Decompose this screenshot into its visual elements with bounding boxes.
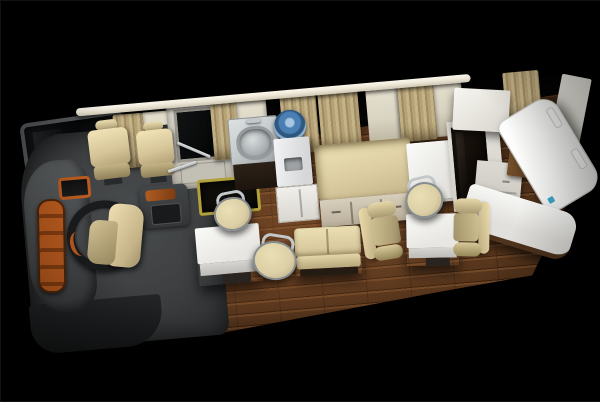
- cabinet-seam: [299, 189, 303, 218]
- seat-back: [135, 128, 175, 166]
- console-panel: [150, 203, 182, 225]
- lounge-bench: [294, 225, 362, 276]
- chair-armrest: [453, 242, 481, 257]
- passenger-seat-1: [84, 117, 135, 186]
- armchair-2: [451, 198, 490, 257]
- render-canvas: [0, 0, 600, 402]
- vehicle-interior: [13, 59, 592, 352]
- stool-2: [250, 231, 297, 283]
- tv-glare: [455, 131, 468, 200]
- fridge-logo: [547, 196, 555, 204]
- chair-seat: [371, 215, 401, 247]
- curtain-5: [397, 81, 438, 142]
- cabinet-handle: [502, 180, 509, 183]
- table-pedestal: [426, 257, 450, 266]
- passenger-seat-2: [133, 120, 179, 184]
- stool-1: [210, 188, 251, 234]
- console-wood-trim: [145, 188, 176, 201]
- chair-seat: [454, 213, 480, 241]
- dashboard-orange-trim: [37, 199, 67, 293]
- driver-seat-cushion: [87, 220, 119, 266]
- fridge-handle: [545, 107, 563, 130]
- chair-armrest: [453, 198, 481, 213]
- table-front: [408, 248, 457, 258]
- instrument-cluster: [58, 175, 92, 200]
- sofa-cushion: [314, 137, 414, 201]
- dispenser-slot: [284, 157, 302, 171]
- fridge-handle: [570, 148, 588, 171]
- driver-seat: [86, 201, 146, 271]
- dispenser-cabinet: [275, 184, 320, 224]
- center-console: [139, 183, 190, 229]
- water-dispenser: [273, 136, 313, 187]
